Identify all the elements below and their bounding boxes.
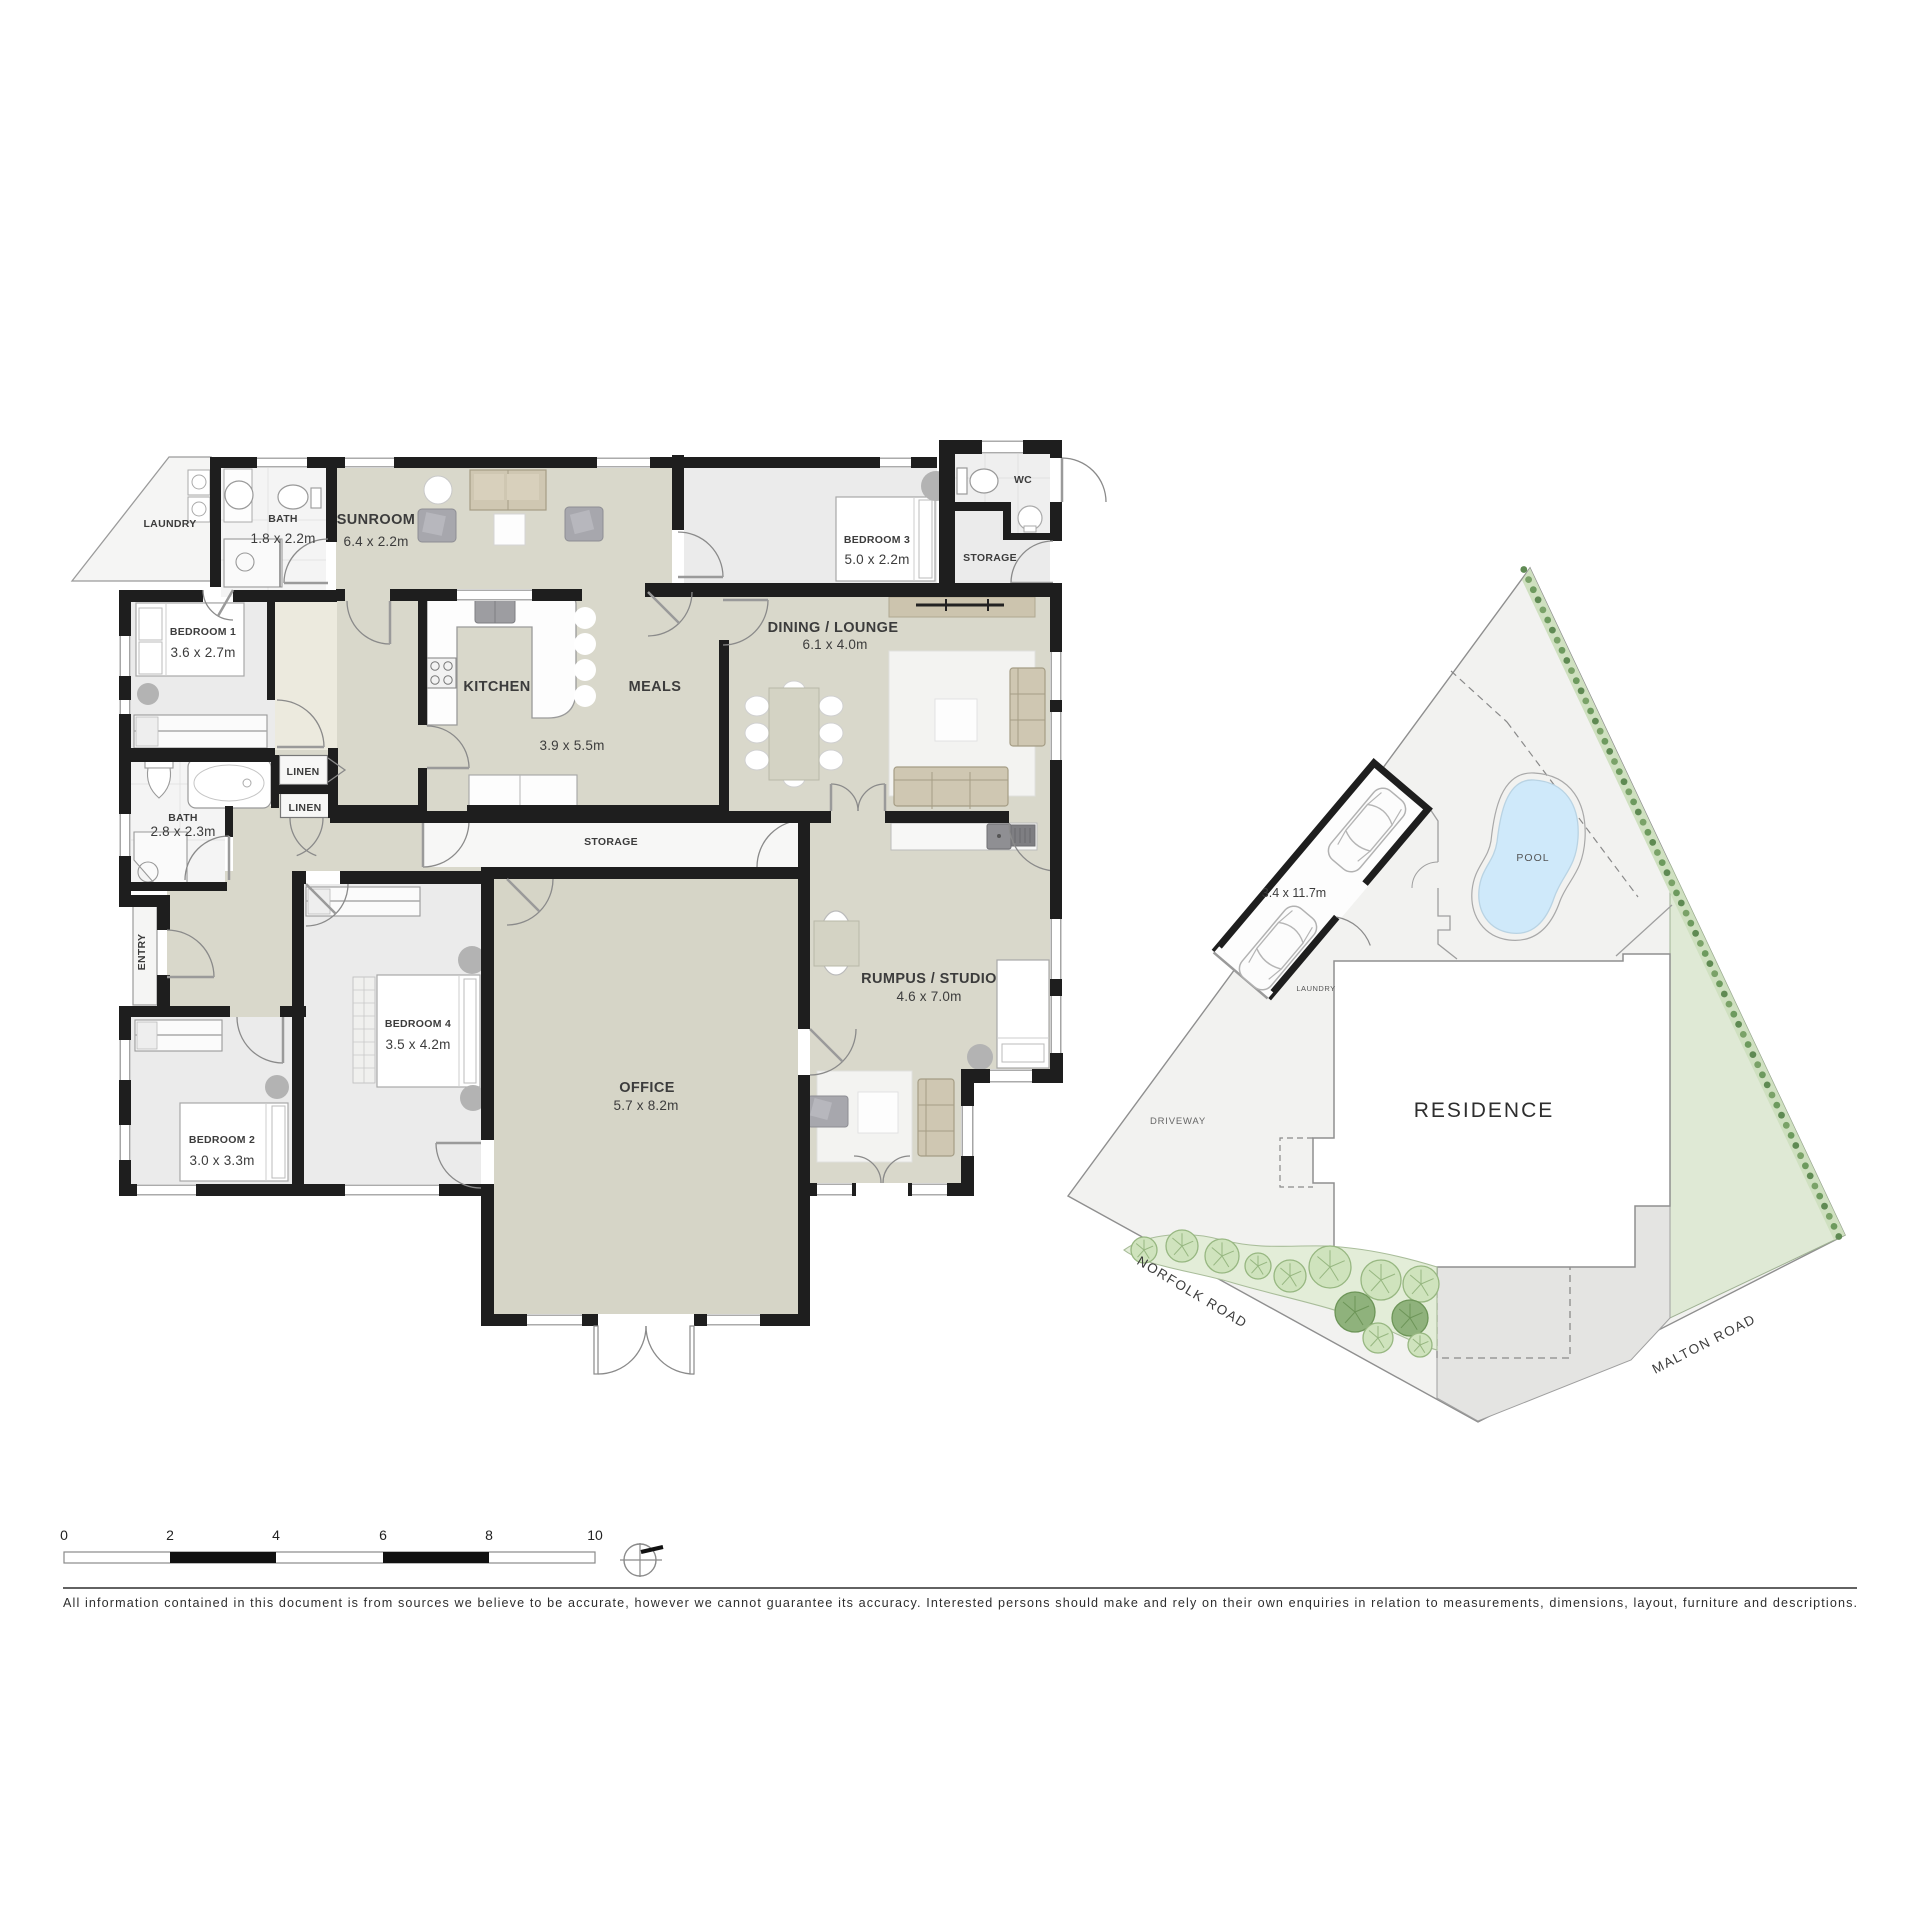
svg-text:ENTRY: ENTRY — [136, 934, 148, 971]
svg-text:0: 0 — [60, 1527, 68, 1543]
svg-text:1.8 x 2.2m: 1.8 x 2.2m — [250, 531, 315, 546]
svg-text:3.4 x 11.7m: 3.4 x 11.7m — [1262, 886, 1326, 900]
svg-text:6: 6 — [379, 1527, 387, 1543]
svg-text:6.1 x 4.0m: 6.1 x 4.0m — [802, 637, 867, 652]
svg-text:POOL: POOL — [1516, 852, 1549, 864]
svg-text:BEDROOM 1: BEDROOM 1 — [170, 626, 236, 638]
svg-text:3.6 x 2.7m: 3.6 x 2.7m — [170, 645, 235, 660]
svg-text:KITCHEN: KITCHEN — [463, 679, 530, 695]
svg-text:OFFICE: OFFICE — [619, 1080, 675, 1096]
svg-text:3.5 x 4.2m: 3.5 x 4.2m — [385, 1037, 450, 1052]
svg-text:DINING / LOUNGE: DINING / LOUNGE — [768, 620, 899, 636]
svg-text:SUNROOM: SUNROOM — [337, 512, 416, 528]
svg-text:6.4 x 2.2m: 6.4 x 2.2m — [343, 534, 408, 549]
svg-text:BEDROOM 4: BEDROOM 4 — [385, 1018, 451, 1030]
svg-text:8: 8 — [485, 1527, 493, 1543]
svg-text:STORAGE: STORAGE — [584, 836, 638, 848]
svg-text:RUMPUS / STUDIO: RUMPUS / STUDIO — [861, 971, 997, 987]
svg-text:4: 4 — [272, 1527, 280, 1543]
svg-text:BATH: BATH — [268, 513, 298, 525]
svg-text:5.0 x 2.2m: 5.0 x 2.2m — [844, 552, 909, 567]
svg-text:BATH: BATH — [168, 812, 198, 824]
svg-text:WC: WC — [1014, 474, 1032, 486]
svg-text:3.0 x 3.3m: 3.0 x 3.3m — [189, 1153, 254, 1168]
svg-text:BEDROOM 2: BEDROOM 2 — [189, 1134, 255, 1146]
svg-text:BEDROOM 3: BEDROOM 3 — [844, 534, 910, 546]
svg-text:LAUNDRY: LAUNDRY — [143, 518, 196, 530]
svg-text:DRIVEWAY: DRIVEWAY — [1150, 1116, 1206, 1127]
svg-text:LINEN: LINEN — [289, 802, 322, 814]
svg-text:2: 2 — [166, 1527, 174, 1543]
svg-text:3.9 x 5.5m: 3.9 x 5.5m — [539, 738, 604, 753]
svg-text:5.7 x 8.2m: 5.7 x 8.2m — [613, 1098, 678, 1113]
svg-text:STORAGE: STORAGE — [963, 552, 1017, 564]
svg-text:2.8 x 2.3m: 2.8 x 2.3m — [150, 824, 215, 839]
svg-text:MEALS: MEALS — [629, 679, 682, 695]
svg-text:LAUNDRY: LAUNDRY — [1296, 984, 1335, 993]
svg-text:4.6 x 7.0m: 4.6 x 7.0m — [896, 989, 961, 1004]
svg-text:RESIDENCE: RESIDENCE — [1414, 1099, 1555, 1122]
svg-text:All information contained in t: All information contained in this docume… — [63, 1596, 1857, 1610]
svg-text:LINEN: LINEN — [287, 766, 320, 778]
svg-text:10: 10 — [587, 1527, 603, 1543]
